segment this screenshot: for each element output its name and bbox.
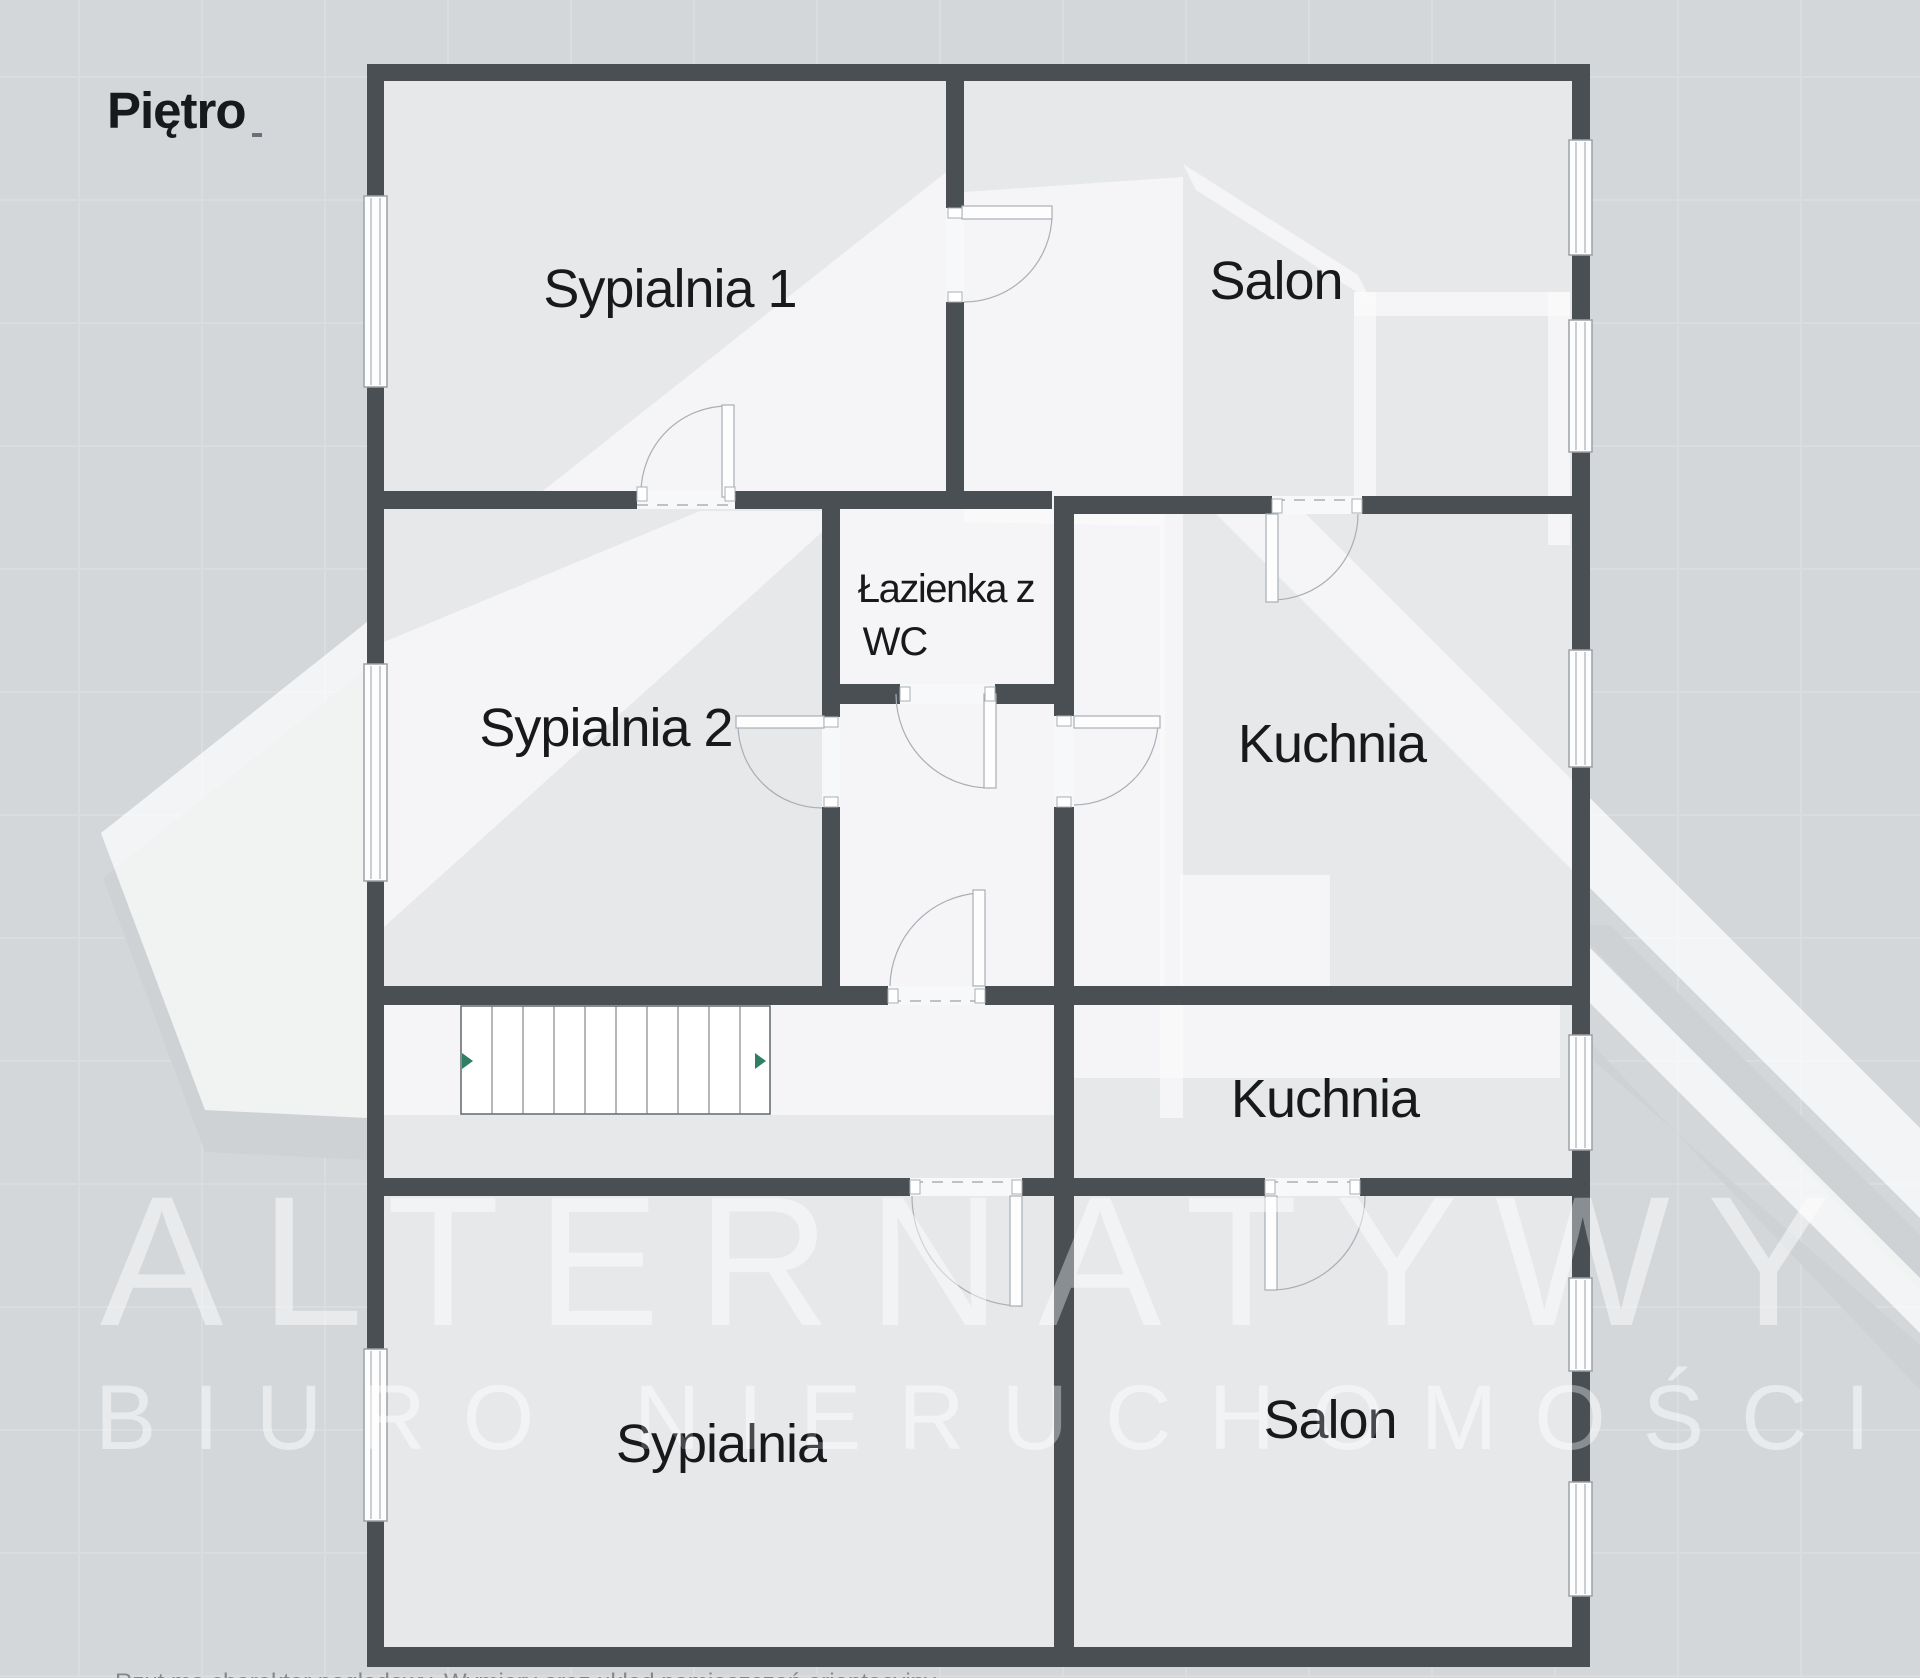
svg-text:ALTERNATYWY: ALTERNATYWY <box>100 1159 1867 1365</box>
svg-text:WC: WC <box>863 620 928 664</box>
svg-text:Kuchnia: Kuchnia <box>1238 714 1428 774</box>
svg-text:Piętro: Piętro <box>107 82 246 139</box>
svg-text:Salon: Salon <box>1209 251 1342 311</box>
svg-text:BIURO NIERUCHOMOŚCI: BIURO NIERUCHOMOŚCI <box>95 1365 1907 1469</box>
svg-text:Rzut ma charakter poglądowy. W: Rzut ma charakter poglądowy. Wymiary ora… <box>115 1669 941 1678</box>
svg-text:Kuchnia: Kuchnia <box>1231 1069 1421 1129</box>
svg-text:Łazienka z: Łazienka z <box>858 567 1035 611</box>
svg-text:Sypialnia 1: Sypialnia 1 <box>543 259 796 319</box>
svg-text:Sypialnia 2: Sypialnia 2 <box>479 698 732 758</box>
